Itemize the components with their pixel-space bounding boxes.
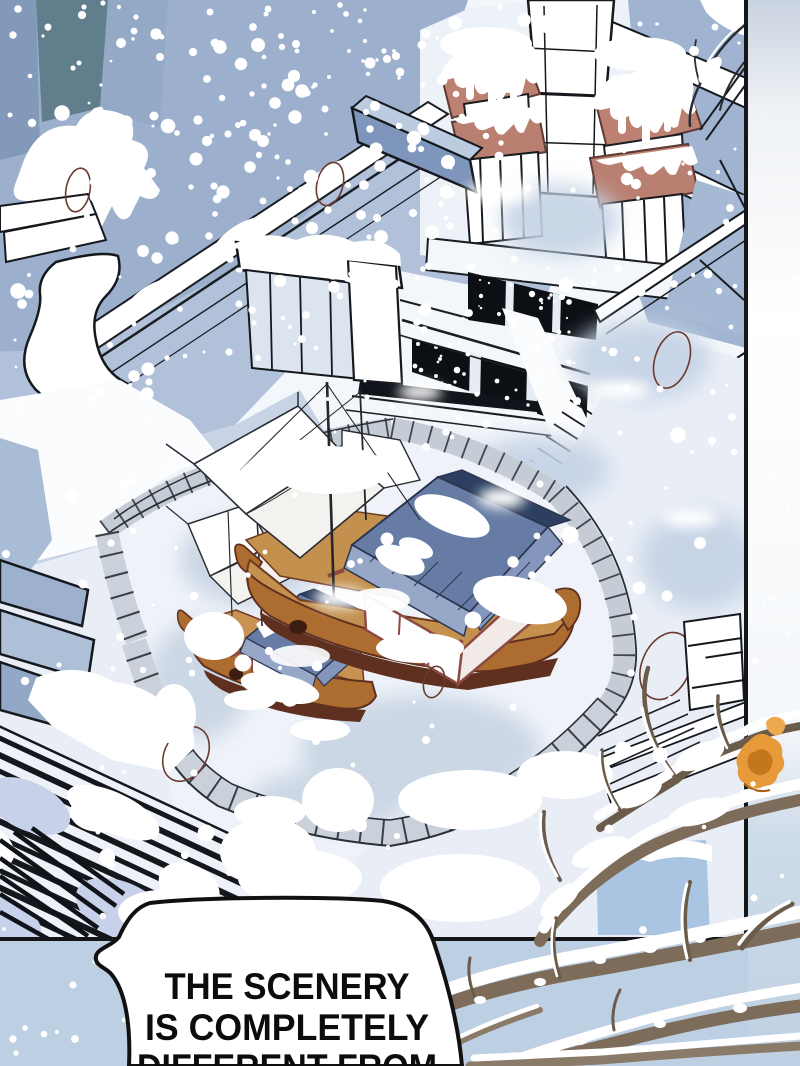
svg-text:IS COMPLETELY: IS COMPLETELY bbox=[145, 1007, 429, 1048]
svg-text:DIFFERENT FROM: DIFFERENT FROM bbox=[137, 1047, 437, 1066]
svg-text:THE SCENERY: THE SCENERY bbox=[165, 966, 410, 1007]
